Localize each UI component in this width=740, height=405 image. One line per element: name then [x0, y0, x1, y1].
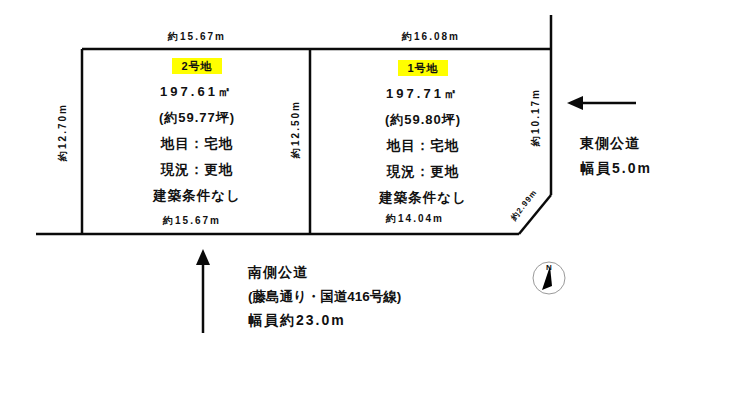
- south-road-info: 南側公道 (藤島通り・国道416号線) 幅員約23.0m: [248, 265, 401, 328]
- dim-plot2-top: 約15.67m: [132, 30, 262, 44]
- dim-plot1-bottom: 約14.04m: [350, 212, 480, 226]
- south-road-route: (藤島通り・国道416号線): [248, 288, 401, 305]
- plot2-area: 197.61㎡: [160, 84, 234, 100]
- dim-plot1-top: 約16.08m: [366, 30, 496, 44]
- plot2-badge: 2号地: [172, 58, 221, 74]
- plot2-current-state: 現況：更地: [161, 162, 234, 178]
- plot1-area: 197.71㎡: [386, 86, 460, 102]
- plot1-info: 1号地 197.71㎡ (約59.80坪) 地目：宅地 現況：更地 建築条件なし: [312, 60, 534, 206]
- land-plot-diagram: N 約15.67m 約16.08m 約15.67m 約14.04m 約12.70…: [0, 0, 740, 405]
- east-road-name: 東側公道: [580, 136, 652, 151]
- plot2-land-category: 地目：宅地: [161, 136, 234, 152]
- plot1-current-state: 現況：更地: [387, 164, 460, 180]
- plot1-land-category: 地目：宅地: [387, 138, 460, 154]
- south-road-arrow-icon: [196, 249, 210, 333]
- plot1-tsubo: (約59.80坪): [385, 112, 461, 128]
- east-road-width: 幅員5.0m: [580, 161, 652, 176]
- south-road-name: 南側公道: [248, 265, 401, 280]
- compass-north-label: N: [546, 263, 552, 272]
- plot2-building-condition: 建築条件なし: [153, 188, 241, 204]
- plot2-tsubo: (約59.77坪): [159, 110, 235, 126]
- plot1-building-condition: 建築条件なし: [379, 190, 467, 206]
- east-road-info: 東側公道 幅員5.0m: [580, 136, 652, 176]
- plot1-badge: 1号地: [398, 60, 447, 76]
- dim-plot2-left: 約12.70m: [56, 103, 70, 161]
- south-road-width: 幅員約23.0m: [248, 313, 401, 328]
- plot2-info: 2号地 197.61㎡ (約59.77坪) 地目：宅地 現況：更地 建築条件なし: [84, 58, 310, 204]
- dim-plot2-bottom: 約15.67m: [127, 214, 257, 228]
- east-road-arrow-icon: [567, 96, 636, 110]
